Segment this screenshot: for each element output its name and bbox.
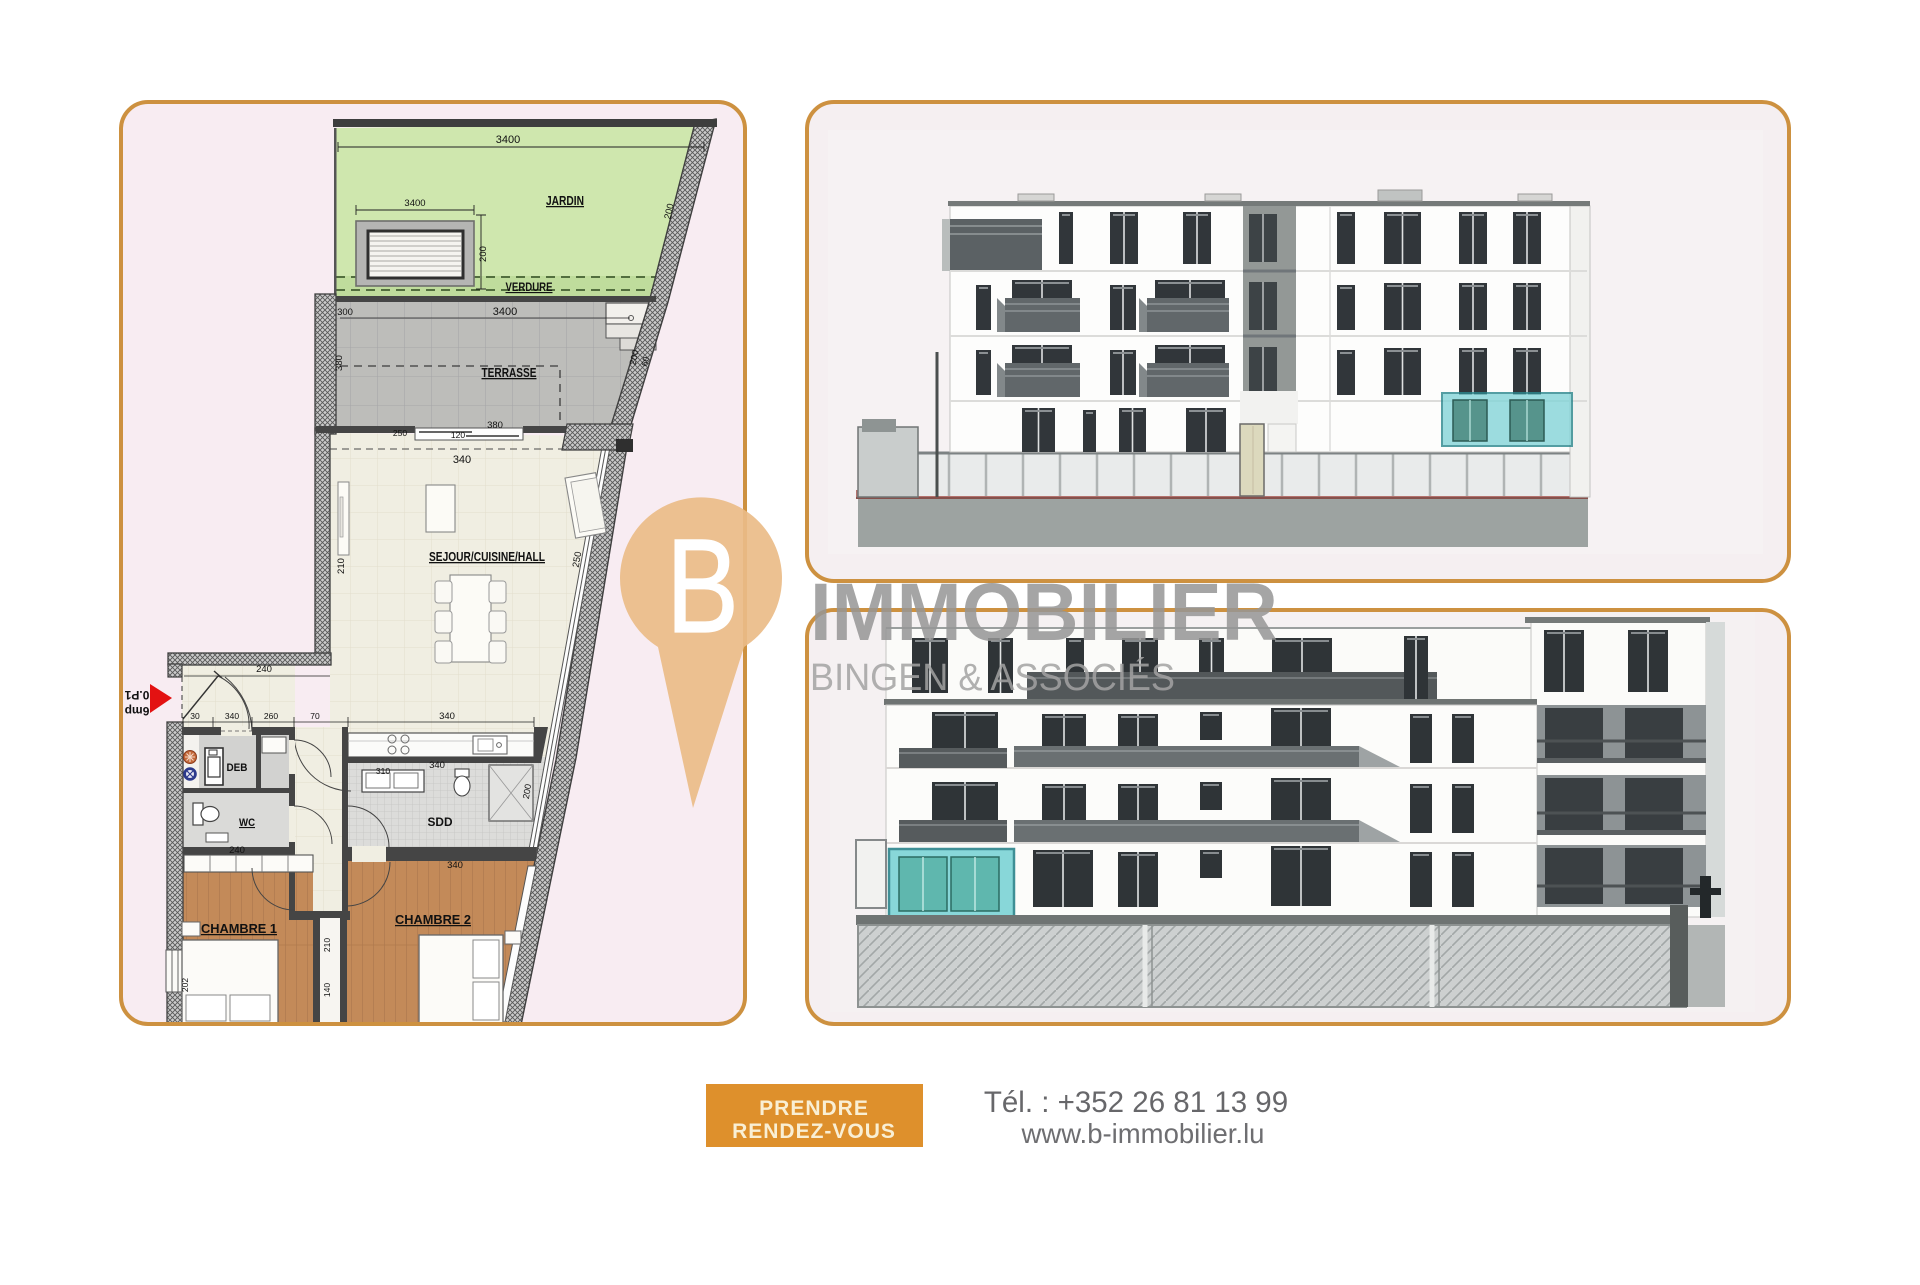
svg-text:210: 210 <box>336 558 347 574</box>
svg-text:B: B <box>666 512 739 661</box>
svg-text:0.P1: 0.P1 <box>124 688 149 702</box>
svg-text:CHAMBRE 2: CHAMBRE 2 <box>395 913 471 927</box>
svg-text:6mp: 6mp <box>125 704 150 718</box>
svg-text:3400: 3400 <box>404 198 425 209</box>
svg-text:340: 340 <box>453 454 471 466</box>
svg-text:202: 202 <box>180 978 190 992</box>
svg-text:3400: 3400 <box>496 134 520 146</box>
svg-text:3400: 3400 <box>493 306 517 318</box>
svg-text:340: 340 <box>225 711 239 721</box>
svg-text:70: 70 <box>310 711 320 721</box>
svg-text:DEB: DEB <box>227 762 248 774</box>
svg-text:340: 340 <box>429 760 445 771</box>
svg-text:PRENDRE: PRENDRE <box>759 1097 869 1120</box>
svg-text:120: 120 <box>451 430 465 440</box>
svg-text:BINGEN & ASSOCIÉS: BINGEN & ASSOCIÉS <box>810 656 1175 699</box>
svg-text:380: 380 <box>487 420 503 431</box>
svg-text:TERRASSE: TERRASSE <box>482 365 537 380</box>
svg-text:380: 380 <box>334 355 345 371</box>
svg-text:210: 210 <box>322 938 332 952</box>
svg-text:Tél. : +352 26 81 13 99: Tél. : +352 26 81 13 99 <box>984 1086 1288 1119</box>
svg-text:SDD: SDD <box>428 815 453 829</box>
svg-text:30: 30 <box>190 711 200 721</box>
svg-text:240: 240 <box>229 845 245 856</box>
svg-text:260: 260 <box>264 711 278 721</box>
svg-text:SEJOUR/CUISINE/HALL: SEJOUR/CUISINE/HALL <box>429 549 545 564</box>
svg-text:140: 140 <box>322 983 332 997</box>
svg-text:300: 300 <box>337 307 353 318</box>
svg-text:www.b-immobilier.lu: www.b-immobilier.lu <box>1021 1118 1265 1149</box>
svg-text:340: 340 <box>447 860 463 871</box>
svg-text:JARDIN: JARDIN <box>546 194 584 208</box>
svg-text:240: 240 <box>256 664 272 675</box>
svg-text:250: 250 <box>393 428 407 438</box>
svg-text:340: 340 <box>439 711 455 722</box>
svg-text:RENDEZ-VOUS: RENDEZ-VOUS <box>732 1120 896 1143</box>
svg-text:VERDURE: VERDURE <box>506 282 553 294</box>
svg-text:WC: WC <box>239 817 255 829</box>
svg-text:CHAMBRE 1: CHAMBRE 1 <box>201 922 277 936</box>
svg-text:IMMOBILIER: IMMOBILIER <box>810 567 1278 658</box>
svg-text:200: 200 <box>478 246 489 262</box>
svg-text:310: 310 <box>376 766 390 776</box>
